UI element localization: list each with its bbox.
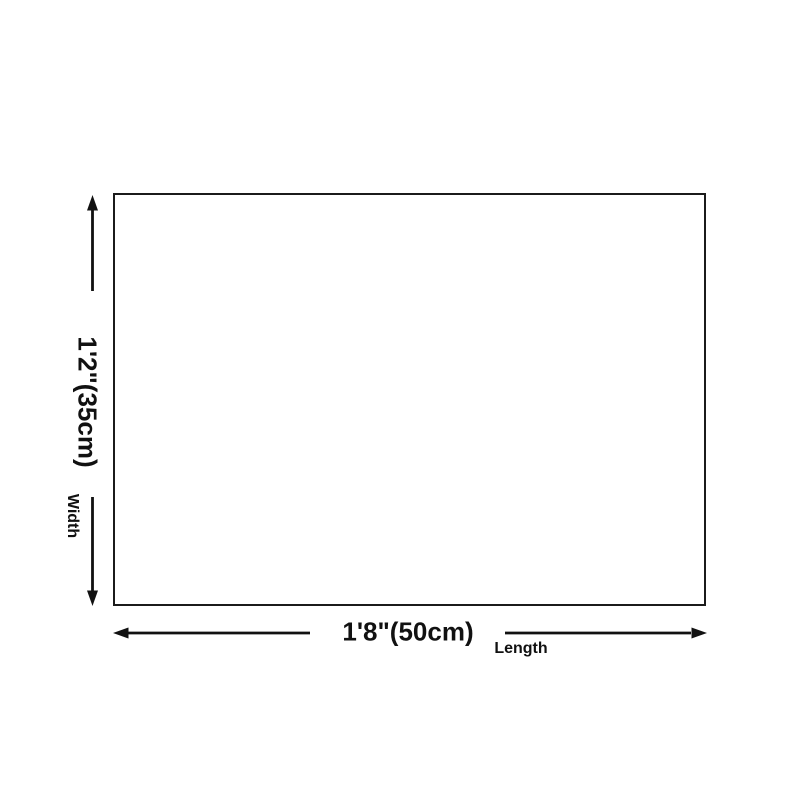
dimension-diagram: 1'2"(35cm) Width 1'8"(50cm) Length [0,0,800,800]
width-arrow-up [87,195,98,291]
length-arrow-right [505,628,707,639]
width-arrow-down [87,497,98,606]
length-dimension-value: 1'8"(50cm) [342,617,473,648]
product-outline-rect [113,193,706,606]
width-dimension-value: 1'2"(35cm) [72,336,103,467]
length-axis-label: Length [494,640,547,658]
length-arrow-left [113,628,310,639]
width-axis-label: Width [63,494,81,538]
